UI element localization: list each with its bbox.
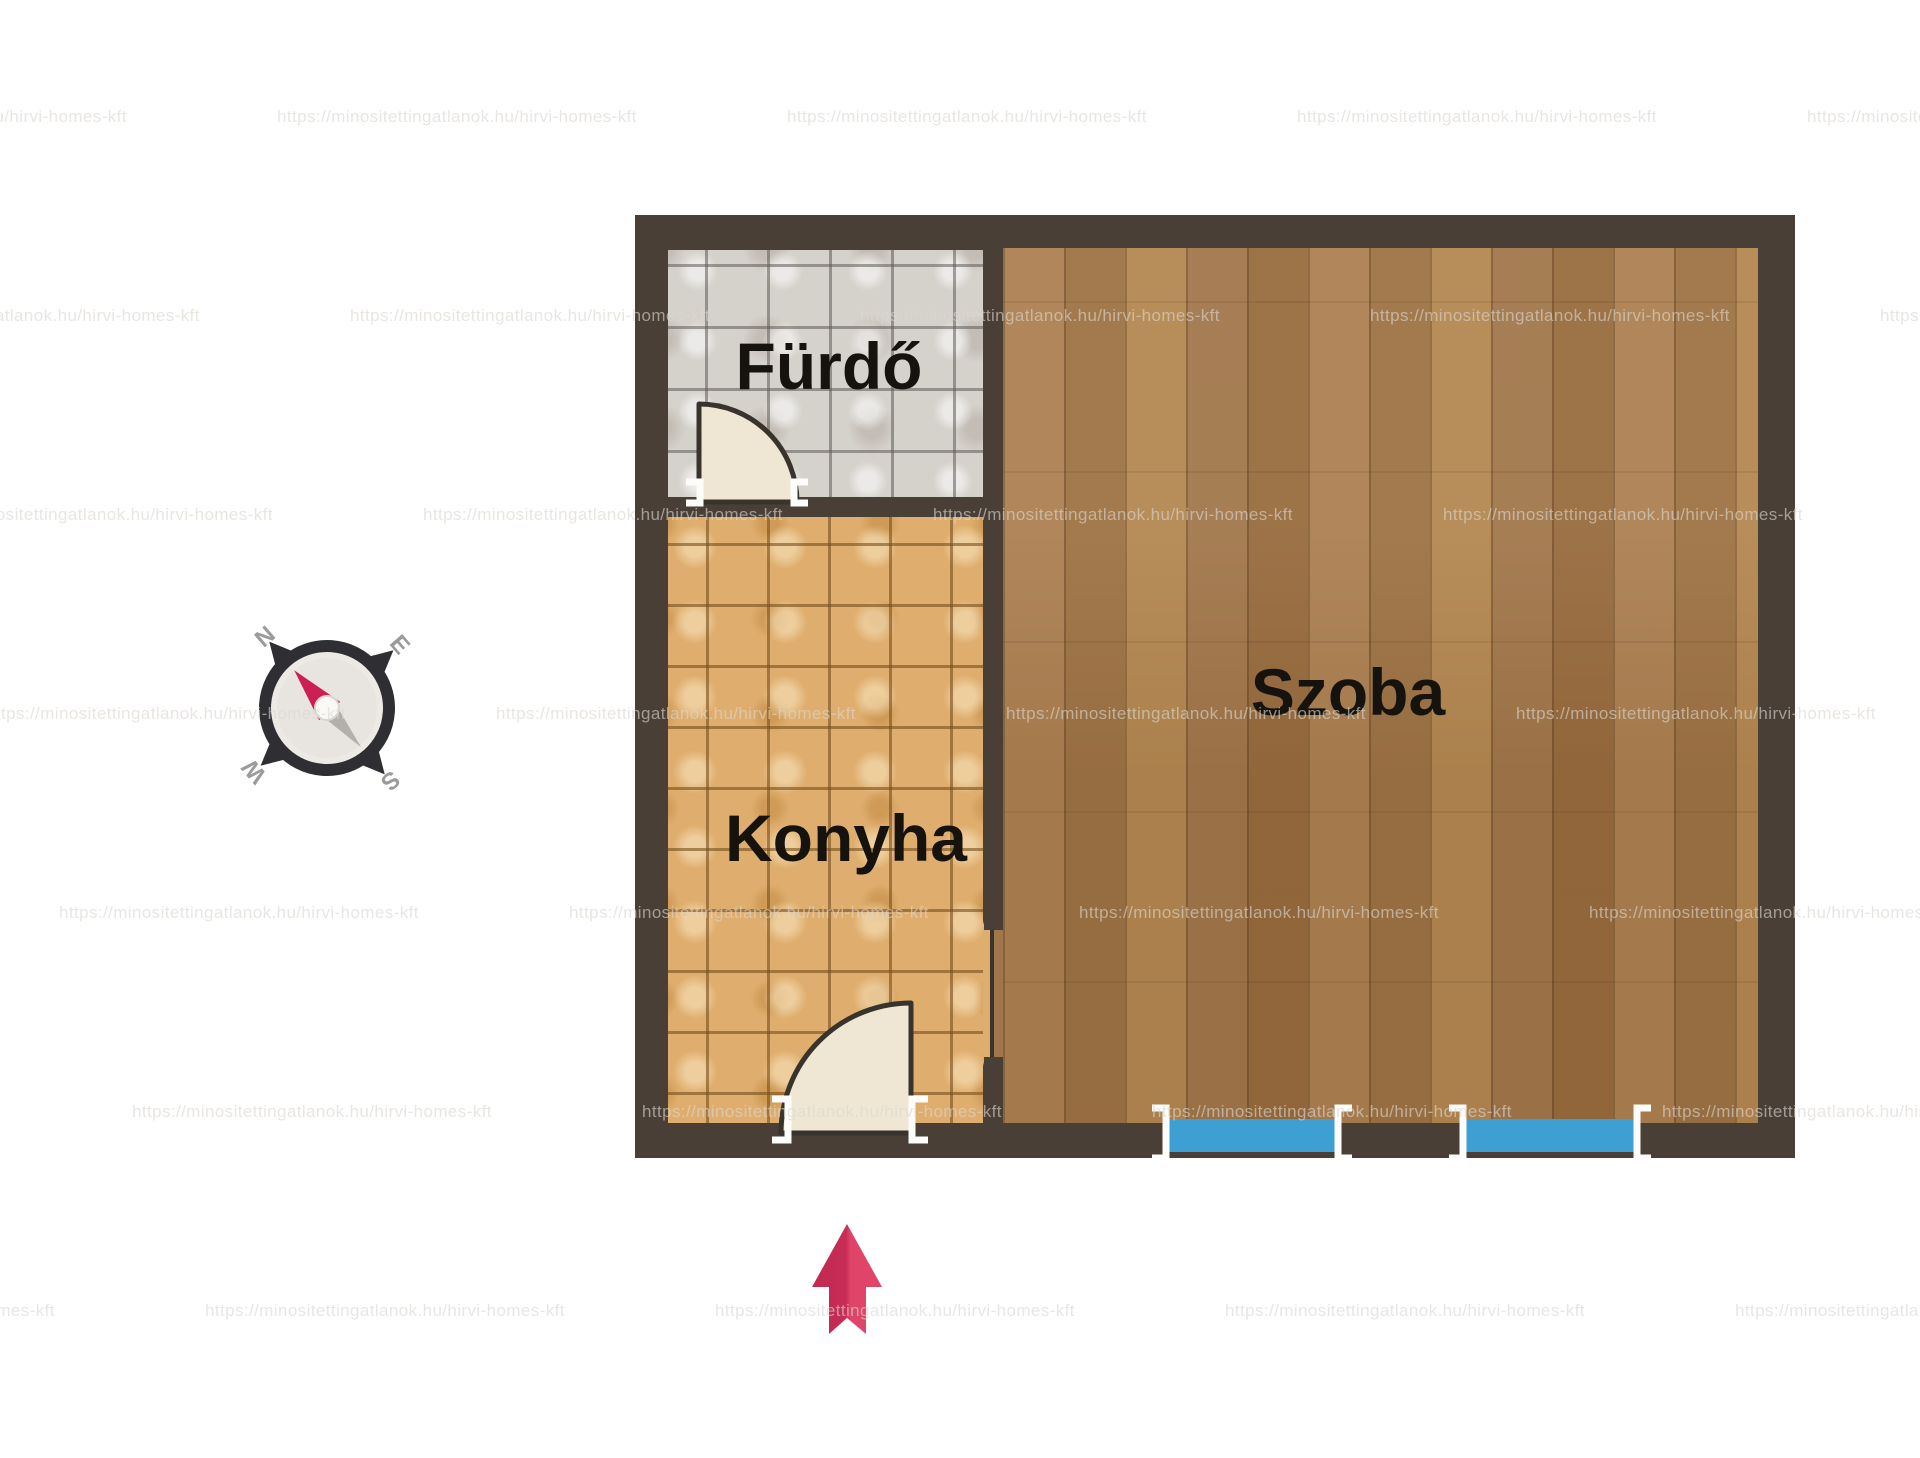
watermark-text: https://minositettingatlanok.hu/hirvi-ho… — [0, 306, 200, 326]
watermark-text: https://minositettingatlanok.hu/hirvi-ho… — [0, 1301, 55, 1321]
bathroom-door-jamb-left — [686, 482, 700, 503]
watermark-text: https://minositettingatlanok.hu/hirvi-ho… — [1735, 1301, 1920, 1321]
watermark-text: https://minositettingatlanok.hu/hirvi-ho… — [0, 107, 127, 127]
watermark-text: https://minositettingatlanok.hu/hirvi-ho… — [1880, 306, 1920, 326]
watermark-text: https://minositettingatlanok.hu/hirvi-ho… — [59, 903, 419, 923]
window-left-jamb-left — [1152, 1108, 1166, 1158]
entrance-door-leaf — [781, 1003, 911, 1133]
floor-plan: Fürdő Konyha Szoba — [635, 215, 1795, 1158]
watermark-text: https://minositettingatlanok.hu/hirvi-ho… — [1297, 107, 1657, 127]
watermark-text: https://minositettingatlanok.hu/hirvi-ho… — [277, 107, 637, 127]
watermark-text: https://minositettingatlanok.hu/hirvi-ho… — [1807, 107, 1920, 127]
entrance-door-jamb-right — [912, 1099, 928, 1140]
watermark-text: https://minositettingatlanok.hu/hirvi-ho… — [787, 107, 1147, 127]
watermark-text: https://minositettingatlanok.hu/hirvi-ho… — [132, 1102, 492, 1122]
compass-rose: N E S W — [207, 588, 447, 828]
window-right-jamb-right — [1637, 1108, 1651, 1158]
floor-plan-page: N E S W Fürdő Konyha Szoba — [0, 0, 1920, 1458]
window-right-jamb-left — [1449, 1108, 1463, 1158]
watermark-text: https://minositettingatlanok.hu/hirvi-ho… — [0, 505, 273, 525]
window-left-jamb-right — [1338, 1108, 1352, 1158]
entrance-arrow-icon — [795, 1213, 899, 1343]
doors-overlay — [635, 215, 1795, 1158]
bathroom-door-jamb-right — [794, 482, 808, 503]
watermark-text: https://minositettingatlanok.hu/hirvi-ho… — [205, 1301, 565, 1321]
entrance-arrow-shape — [812, 1224, 882, 1334]
watermark-text: https://minositettingatlanok.hu/hirvi-ho… — [1225, 1301, 1585, 1321]
bathroom-door-leaf — [699, 404, 797, 502]
